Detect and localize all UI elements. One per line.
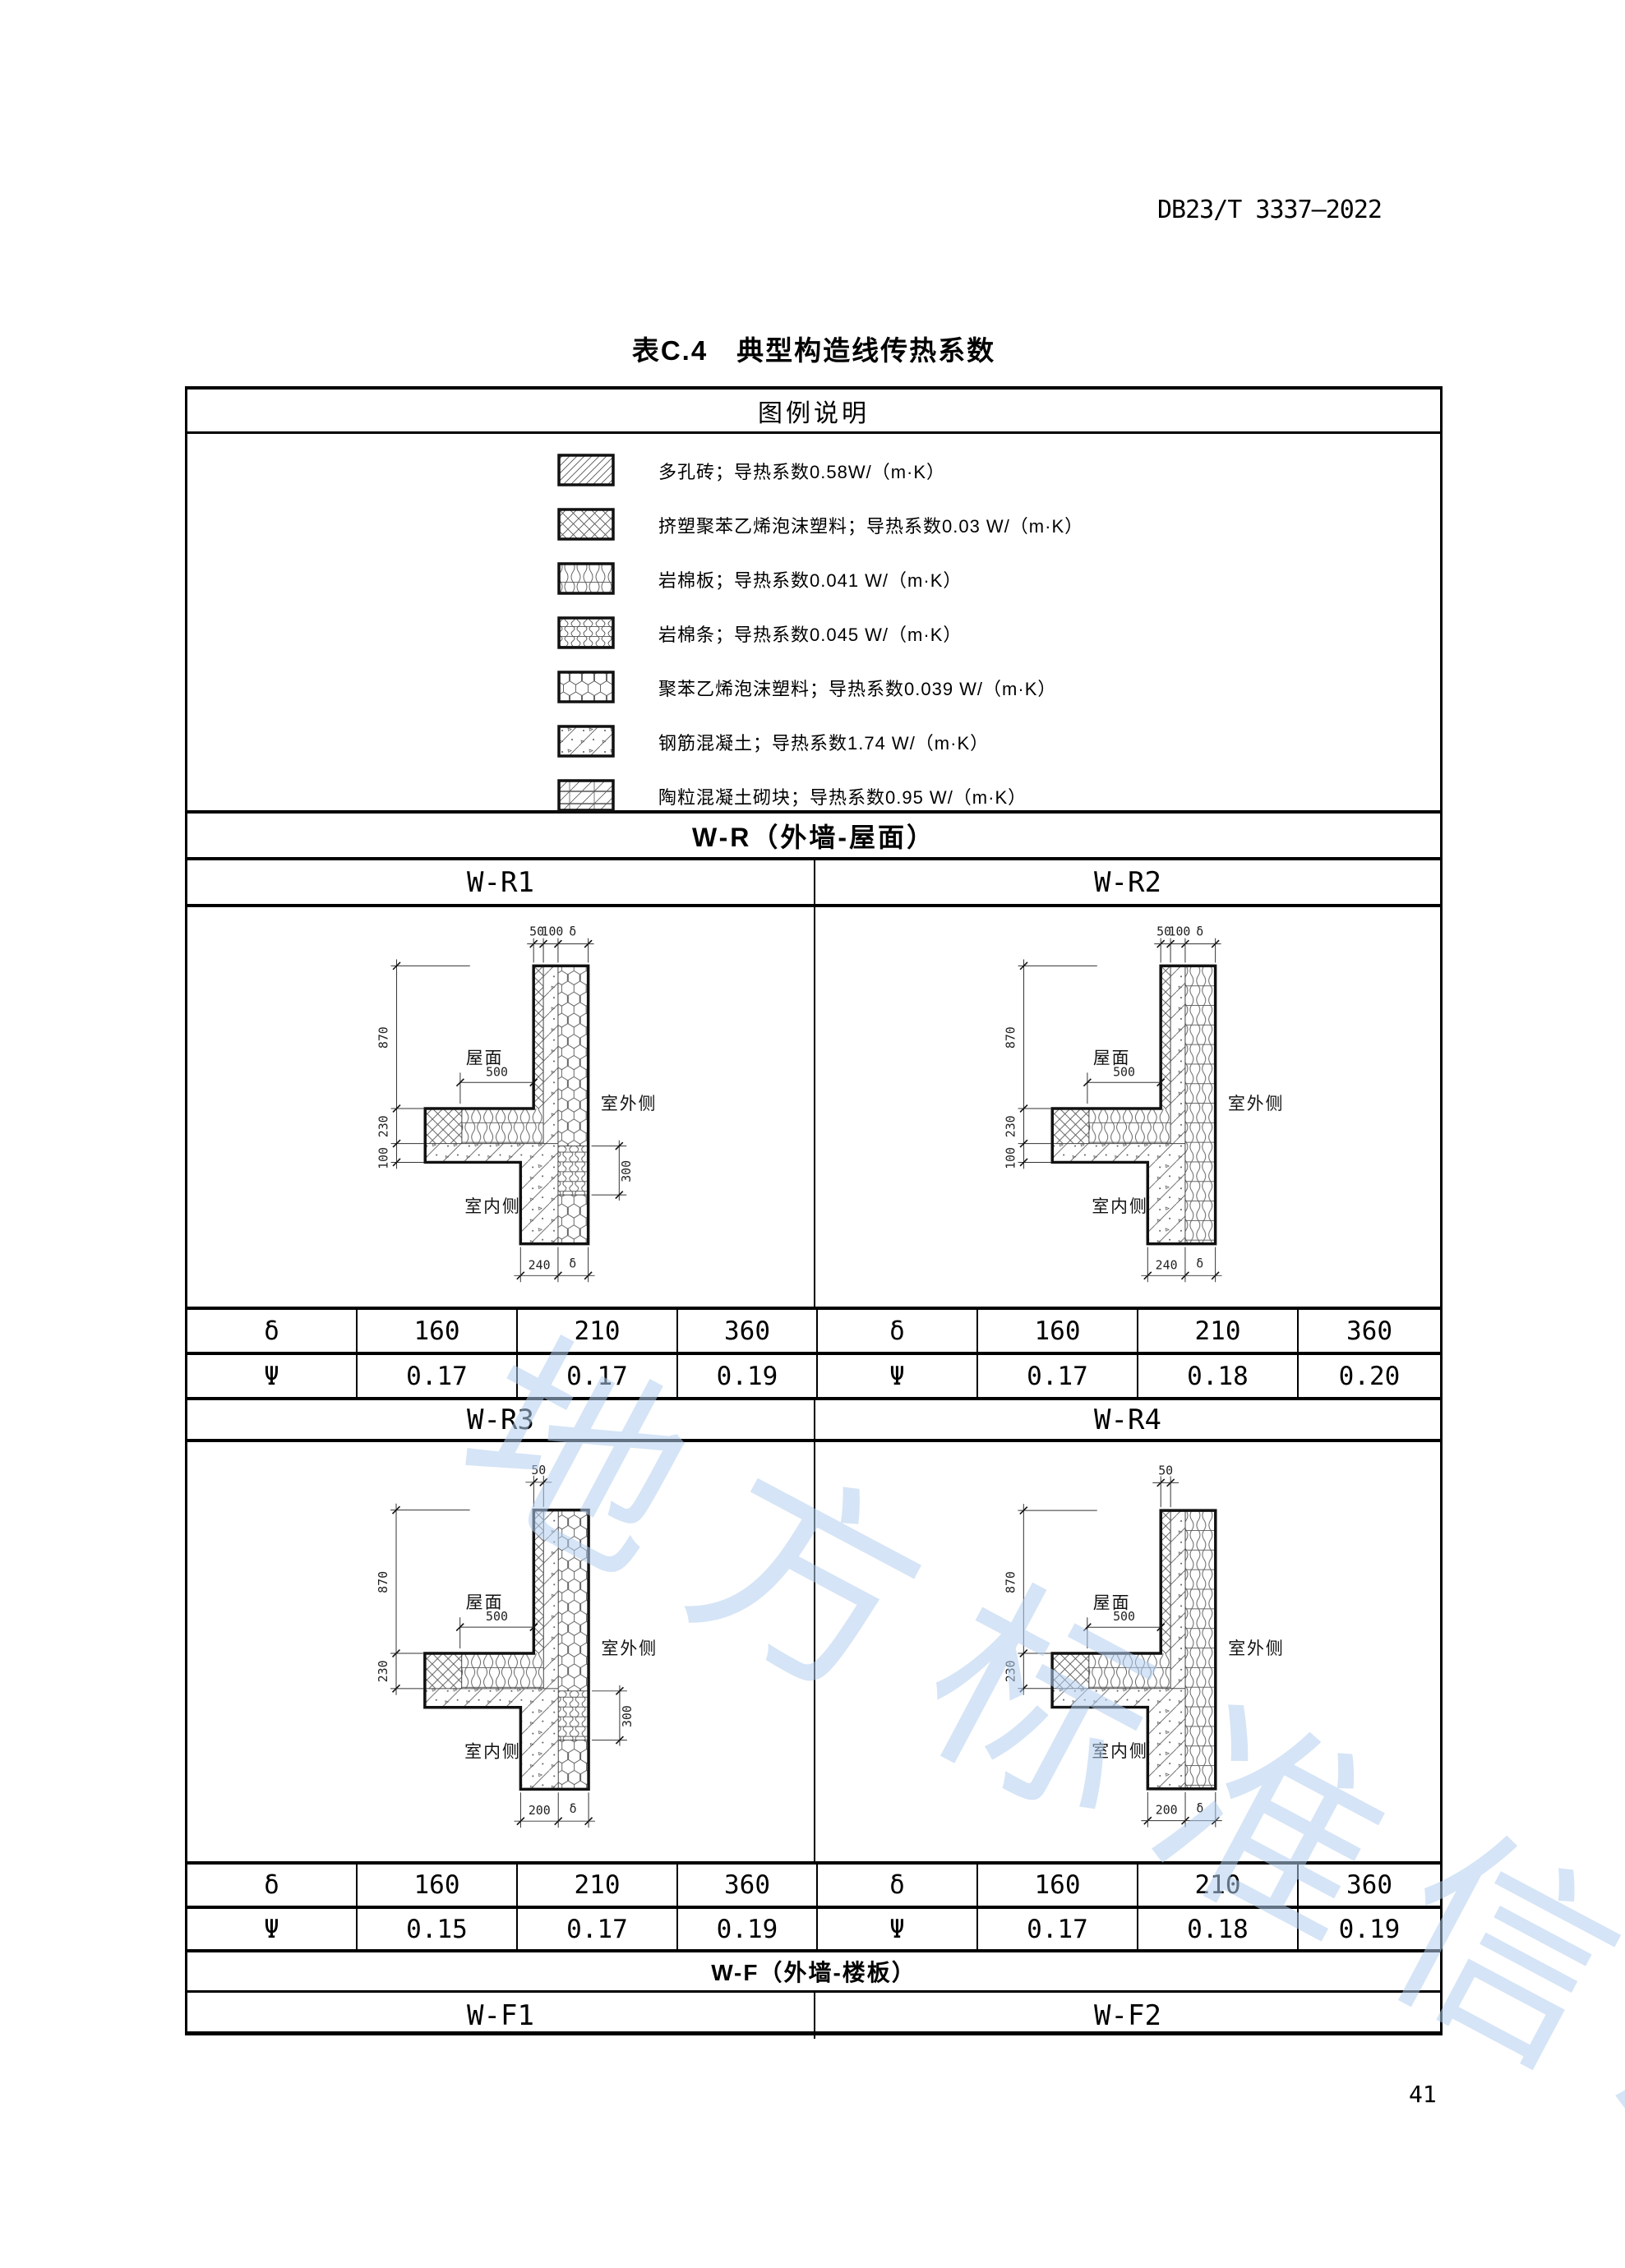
diagram-cell-wr3: 50870230500300200δ屋面室外侧室内侧 <box>187 1442 814 1861</box>
svg-text:δ: δ <box>569 1256 576 1270</box>
delta-value-cell: 160 <box>356 1310 516 1352</box>
rockwool-board-pattern-swatch-icon <box>557 562 615 595</box>
svg-text:870: 870 <box>376 1571 390 1593</box>
panel-name-wr3: W-R3 <box>467 1404 534 1436</box>
svg-text:230: 230 <box>1003 1660 1018 1682</box>
legend-item-label: 岩棉板；导热系数0.041 W/（m·K） <box>658 566 962 592</box>
panel-name-wr1: W-R1 <box>467 866 534 899</box>
panel-name-wf2: W-F2 <box>1094 1999 1161 2032</box>
legend-item: 聚苯乙烯泡沫塑料；导热系数0.039 W/（m·K） <box>187 660 1440 714</box>
diagram-row-2: 50870230500300200δ屋面室外侧室内侧 5087023050020… <box>187 1442 1440 1865</box>
psi-row-2: Ψ 0.15 0.17 0.19 Ψ 0.17 0.18 0.19 <box>187 1909 1440 1952</box>
delta-value-cell: 210 <box>516 1310 676 1352</box>
delta-label-cell: δ <box>187 1310 356 1352</box>
construction-detail-diagram-wr3: 50870230500300200δ屋面室外侧室内侧 <box>187 1442 814 1861</box>
psi-label-cell: Ψ <box>187 1909 356 1949</box>
hatch-pattern-swatch-icon <box>557 454 615 486</box>
panel-name-cell-wf2: W-F2 <box>814 1993 1440 2039</box>
legend-item-label: 挤塑聚苯乙烯泡沫塑料；导热系数0.03 W/（m·K） <box>658 512 1083 538</box>
svg-text:δ: δ <box>569 924 576 939</box>
svg-text:870: 870 <box>376 1026 391 1049</box>
psi-label-cell: Ψ <box>816 1355 976 1397</box>
svg-text:屋面: 屋面 <box>1093 1593 1131 1612</box>
psi-value-cell: 0.17 <box>976 1909 1137 1949</box>
block-grid-pattern-swatch-icon <box>557 779 615 812</box>
delta-row-1: δ 160 210 360 δ 160 210 360 <box>187 1310 1440 1355</box>
section-header-wf-row: W-F（外墙-楼板） <box>187 1952 1440 1993</box>
svg-text:240: 240 <box>1156 1257 1178 1272</box>
panel-name-wr2: W-R2 <box>1094 866 1161 899</box>
psi-value-cell: 0.17 <box>516 1355 676 1397</box>
section-header-wr-row: W-R（外墙-屋面） <box>187 814 1440 860</box>
psi-value-cell: 0.18 <box>1137 1355 1297 1397</box>
svg-text:100: 100 <box>542 924 564 939</box>
svg-text:室外侧: 室外侧 <box>1228 1639 1285 1658</box>
svg-text:870: 870 <box>1004 1026 1018 1049</box>
svg-text:200: 200 <box>1156 1803 1178 1818</box>
svg-text:δ: δ <box>1196 924 1203 939</box>
document-page: DB23/T 3337—2022 表C.4 典型构造线传热系数 图例说明 多孔砖… <box>0 0 1625 2268</box>
svg-text:室内侧: 室内侧 <box>464 1742 521 1761</box>
psi-value-cell: 0.17 <box>356 1355 516 1397</box>
svg-text:870: 870 <box>1003 1571 1018 1593</box>
svg-text:50: 50 <box>531 1463 546 1477</box>
svg-text:δ: δ <box>570 1801 577 1816</box>
panel-name-row-3: W-F1 W-F2 <box>187 1993 1440 2039</box>
delta-value-cell: 160 <box>976 1310 1137 1352</box>
legend-item-label: 聚苯乙烯泡沫塑料；导热系数0.039 W/（m·K） <box>658 675 1056 701</box>
svg-text:室外侧: 室外侧 <box>601 1095 657 1113</box>
svg-text:屋面: 屋面 <box>1093 1049 1131 1067</box>
psi-row-1: Ψ 0.17 0.17 0.19 Ψ 0.17 0.18 0.20 <box>187 1355 1440 1400</box>
legend-item: 挤塑聚苯乙烯泡沫塑料；导热系数0.03 W/（m·K） <box>187 497 1440 551</box>
svg-text:230: 230 <box>376 1660 390 1682</box>
legend-title-row: 图例说明 <box>187 390 1440 434</box>
psi-value-cell: 0.17 <box>516 1909 676 1949</box>
legend-item: 岩棉板；导热系数0.041 W/（m·K） <box>187 551 1440 606</box>
svg-text:室外侧: 室外侧 <box>1228 1095 1284 1113</box>
svg-text:100: 100 <box>376 1147 391 1169</box>
document-code: DB23/T 3337—2022 <box>1157 196 1420 224</box>
svg-text:室内侧: 室内侧 <box>1092 1197 1147 1216</box>
svg-text:δ: δ <box>1196 1256 1203 1270</box>
crosshatch-pattern-swatch-icon <box>557 508 615 541</box>
diagram-cell-wr1: 50100δ870230100500300240δ屋面室外侧室内侧 <box>187 907 814 1307</box>
panel-name-row-2: W-R3 W-R4 <box>187 1400 1440 1442</box>
honeycomb-pattern-swatch-icon <box>557 671 615 703</box>
legend-item-label: 钢筋混凝土；导热系数1.74 W/（m·K） <box>658 729 989 755</box>
delta-value-cell: 160 <box>356 1865 516 1906</box>
svg-text:230: 230 <box>376 1115 391 1137</box>
svg-text:室内侧: 室内侧 <box>464 1197 520 1216</box>
diagram-cell-wr2: 50100δ870230100500240δ屋面室外侧室内侧 <box>814 907 1440 1307</box>
panel-name-wf1: W-F1 <box>467 1999 534 2032</box>
rockwool-strip-pattern-swatch-icon <box>557 616 615 649</box>
psi-value-cell: 0.19 <box>1297 1909 1440 1949</box>
delta-label-cell: δ <box>187 1865 356 1906</box>
panel-name-cell-wr3: W-R3 <box>187 1400 814 1439</box>
psi-value-cell: 0.15 <box>356 1909 516 1949</box>
svg-text:240: 240 <box>529 1257 551 1272</box>
legend-item: 岩棉条；导热系数0.045 W/（m·K） <box>187 606 1440 660</box>
table-title: 表C.4 典型构造线传热系数 <box>185 329 1443 368</box>
svg-text:50: 50 <box>1158 1463 1173 1477</box>
construction-detail-diagram-wr2: 50100δ870230100500240δ屋面室外侧室内侧 <box>815 907 1440 1307</box>
delta-row-2: δ 160 210 360 δ 160 210 360 <box>187 1865 1440 1909</box>
diagram-cell-wr4: 50870230500200δ屋面室外侧室内侧 <box>814 1442 1440 1861</box>
panel-name-cell-wr2: W-R2 <box>814 860 1440 904</box>
svg-text:δ: δ <box>1196 1801 1203 1816</box>
svg-text:100: 100 <box>1169 924 1191 939</box>
delta-value-cell: 360 <box>676 1310 816 1352</box>
svg-text:屋面: 屋面 <box>466 1593 504 1612</box>
panel-name-cell-wr1: W-R1 <box>187 860 814 904</box>
legend-item: 多孔砖；导热系数0.58W/（m·K） <box>187 443 1440 497</box>
legend-item: 钢筋混凝土；导热系数1.74 W/（m·K） <box>187 714 1440 768</box>
delta-value-cell: 360 <box>1297 1865 1440 1906</box>
section-header-wr: W-R（外墙-屋面） <box>692 817 935 855</box>
svg-text:室内侧: 室内侧 <box>1092 1742 1148 1761</box>
svg-text:300: 300 <box>619 1160 634 1182</box>
panel-name-cell-wf1: W-F1 <box>187 1993 814 2039</box>
delta-value-cell: 160 <box>976 1865 1137 1906</box>
svg-text:300: 300 <box>620 1705 635 1727</box>
svg-text:230: 230 <box>1004 1115 1018 1137</box>
delta-value-cell: 210 <box>1137 1865 1297 1906</box>
svg-text:100: 100 <box>1004 1147 1018 1169</box>
delta-value-cell: 210 <box>1137 1310 1297 1352</box>
panel-name-row-1: W-R1 W-R2 <box>187 860 1440 907</box>
page-number: 41 <box>1409 2081 1437 2108</box>
svg-text:室外侧: 室外侧 <box>602 1639 658 1658</box>
psi-value-cell: 0.20 <box>1297 1355 1440 1397</box>
legend-title: 图例说明 <box>758 393 870 429</box>
construction-detail-diagram-wr1: 50100δ870230100500300240δ屋面室外侧室内侧 <box>187 907 814 1307</box>
svg-text:屋面: 屋面 <box>466 1049 504 1067</box>
delta-value-cell: 360 <box>1297 1310 1440 1352</box>
legend-body-row: 多孔砖；导热系数0.58W/（m·K） 挤塑聚苯乙烯泡沫塑料；导热系数0.03 … <box>187 436 1440 814</box>
construction-detail-diagram-wr4: 50870230500200δ屋面室外侧室内侧 <box>815 1442 1440 1861</box>
diagram-row-1: 50100δ870230100500300240δ屋面室外侧室内侧 50100δ… <box>187 907 1440 1310</box>
delta-label-cell: δ <box>816 1310 976 1352</box>
concrete-pattern-swatch-icon <box>557 725 615 758</box>
psi-label-cell: Ψ <box>187 1355 356 1397</box>
panel-name-wr4: W-R4 <box>1094 1404 1161 1436</box>
legend-item-label: 岩棉条；导热系数0.045 W/（m·K） <box>658 620 962 647</box>
delta-label-cell: δ <box>816 1865 976 1906</box>
delta-value-cell: 360 <box>676 1865 816 1906</box>
psi-label-cell: Ψ <box>816 1909 976 1949</box>
legend-item-label: 陶粒混凝土砌块；导热系数0.95 W/（m·K） <box>658 783 1027 809</box>
panel-name-cell-wr4: W-R4 <box>814 1400 1440 1439</box>
section-header-wf: W-F（外墙-楼板） <box>711 1955 916 1988</box>
psi-value-cell: 0.19 <box>676 1909 816 1949</box>
psi-value-cell: 0.18 <box>1137 1909 1297 1949</box>
legend-item-label: 多孔砖；导热系数0.58W/（m·K） <box>658 458 945 484</box>
delta-value-cell: 210 <box>516 1865 676 1906</box>
svg-text:200: 200 <box>529 1803 551 1818</box>
main-table: 图例说明 多孔砖；导热系数0.58W/（m·K） <box>185 386 1443 2035</box>
psi-value-cell: 0.19 <box>676 1355 816 1397</box>
psi-value-cell: 0.17 <box>976 1355 1137 1397</box>
